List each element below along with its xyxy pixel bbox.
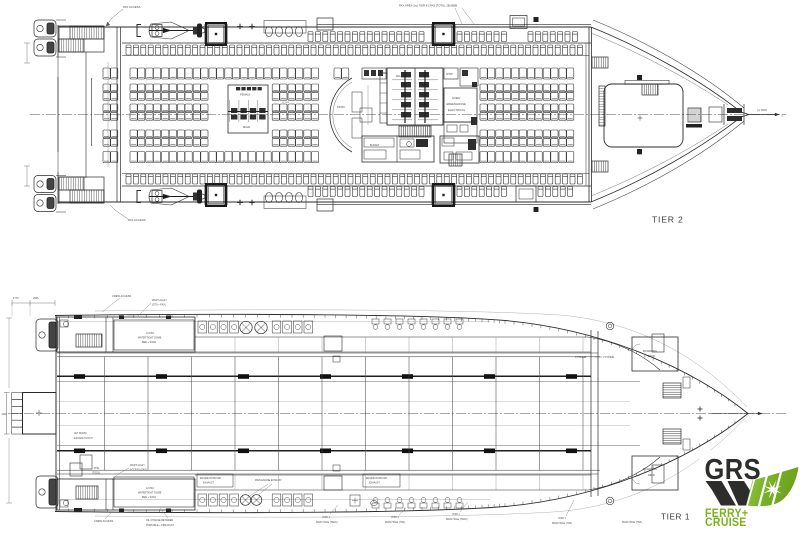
svg-text:PAX AREA 2nd TIER 41 PAX (TOTA: PAX AREA 2nd TIER 41 PAX (TOTAL 2B) BBB [399,4,457,8]
svg-text:BED + SOFA: BED + SOFA [142,341,156,344]
svg-text:1770: 1770 [13,297,19,300]
svg-text:CRUISE: CRUISE [705,516,747,529]
svg-text:2 TONNE: 2 TONNE [603,355,614,359]
svg-text:TIER 1: TIER 1 [661,513,690,522]
svg-text:MAIN HOLE (7N3): MAIN HOLE (7N3) [385,521,405,524]
svg-text:EXHAUST: EXHAUST [369,482,380,485]
svg-text:40 PAX: 40 PAX [172,76,180,79]
svg-text:DECK: DECK [648,473,655,477]
svg-text:MAIN HOLE (TANK): MAIN HOLE (TANK) [446,518,468,521]
svg-text:BOARDING: BOARDING [643,349,657,353]
svg-text:36 PAX: 36 PAX [282,101,290,104]
svg-text:VOID 1: VOID 1 [452,513,461,516]
svg-text:KIOSK: KIOSK [337,105,345,109]
svg-text:PAX ACCESS: PAX ACCESS [123,5,141,9]
svg-text:VOID 1: VOID 1 [558,517,567,520]
svg-text:DECK: DECK [648,354,655,358]
svg-text:MAIN ENGINE EXHAUST: MAIN ENGINE EXHAUST [255,479,282,482]
svg-text:ELECTRICAL: ELECTRICAL [448,108,466,112]
svg-text:VOID 4: VOID 4 [391,516,400,519]
svg-text:(+) FWD: (+) FWD [757,108,767,112]
svg-text:MAIN HOLE (7N3): MAIN HOLE (7N3) [622,521,642,524]
svg-text:ESCAPE HATCH: ESCAPE HATCH [74,437,93,440]
svg-text:OIL CHANGE BETWEEN: OIL CHANGE BETWEEN [146,519,173,522]
svg-text:TIER 2: TIER 2 [652,215,684,225]
svg-text:EXHAUST: EXHAUST [203,482,214,485]
svg-text:12 PAX: 12 PAX [146,487,154,490]
svg-text:PORTABLE + FIRE DUCT: PORTABLE + FIRE DUCT [146,524,175,527]
svg-text:PHE: PHE [94,467,99,470]
svg-text:ACCESS (TAG): ACCESS (TAG) [130,469,147,472]
svg-text:WATERTIGHT DOME: WATERTIGHT DOME [138,492,162,495]
svg-text:CREW ACCESS: CREW ACCESS [112,294,131,298]
svg-text:JET ROOM: JET ROOM [74,432,86,435]
svg-text:ENGINE ROOM AIR: ENGINE ROOM AIR [200,477,221,480]
svg-text:4200: 4200 [2,414,8,416]
svg-text:12 PAX: 12 PAX [146,332,154,335]
svg-text:LINEN: LINEN [452,96,460,100]
svg-text:BED + SOFA: BED + SOFA [142,496,156,499]
svg-text:MAIN HOLE (TANK): MAIN HOLE (TANK) [316,521,338,524]
svg-text:MAIN HOLE (7N3): MAIN HOLE (7N3) [552,522,572,525]
svg-text:(TOOL): (TOOL) [92,472,100,475]
svg-text:SHOP: SHOP [446,73,453,76]
svg-text:2005: 2005 [33,297,39,300]
svg-text:4 TONNE: 4 TONNE [575,355,586,359]
svg-text:CREW ACCESS: CREW ACCESS [94,519,113,523]
svg-text:PAX ACCESS: PAX ACCESS [128,218,146,222]
svg-text:VOID 1: VOID 1 [322,516,331,519]
svg-text:MALE: MALE [243,125,250,129]
svg-text:GREENHOUSE: GREENHOUSE [446,102,466,106]
svg-text:FEMALE: FEMALE [240,93,251,97]
svg-text:BOARDING: BOARDING [643,467,657,471]
svg-text:ENGINE ROOM AIR: ENGINE ROOM AIR [366,477,387,480]
svg-text:BUFFET: BUFFET [370,144,380,147]
svg-text:(DTS + PAX): (DTS + PAX) [152,304,166,307]
svg-text:WATERTIGHT DOME: WATERTIGHT DOME [138,337,162,340]
svg-text:44 PAX: 44 PAX [520,76,528,79]
svg-text:WART ALLEY: WART ALLEY [130,464,145,467]
svg-text:WART ALLEY: WART ALLEY [152,299,167,302]
